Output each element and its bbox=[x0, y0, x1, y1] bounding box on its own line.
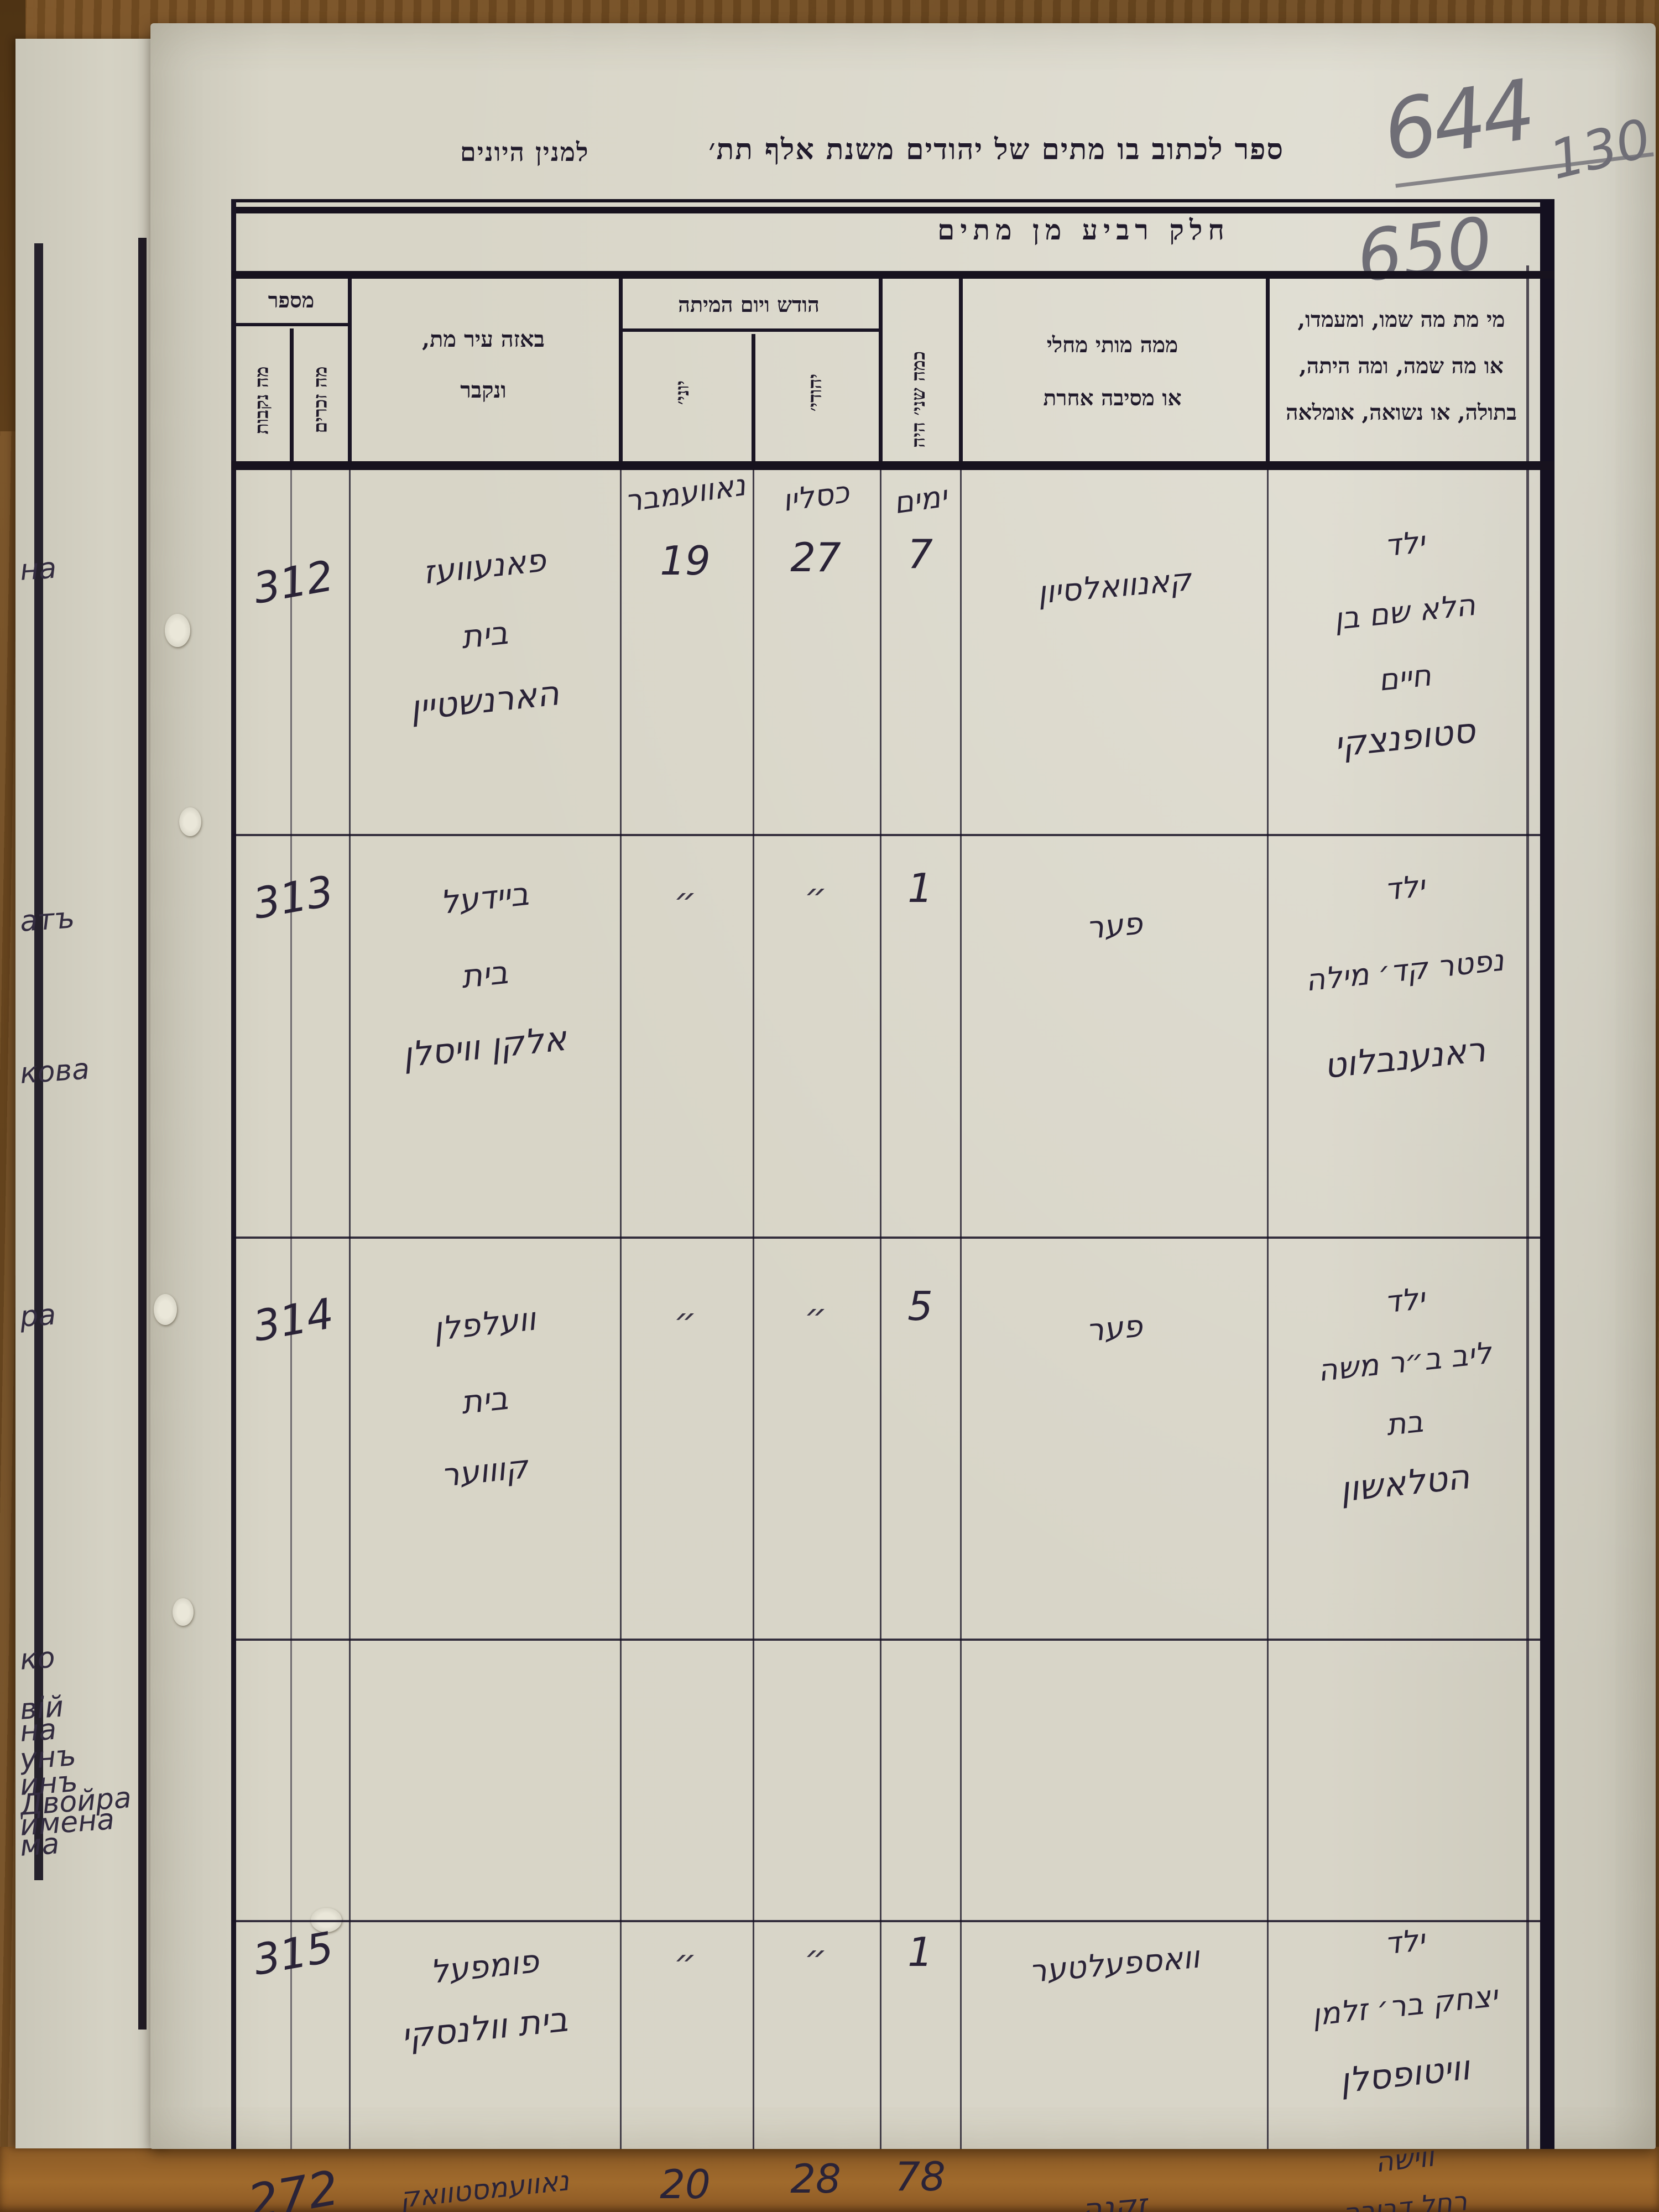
jewish-date: 28 bbox=[754, 2156, 877, 2202]
margin-handwriting-fragment: ма bbox=[19, 1822, 132, 1863]
name-line: הטלאשון bbox=[1271, 1449, 1538, 1517]
section-title: חלק רביע מן מתים bbox=[937, 213, 1230, 246]
column-rule bbox=[290, 328, 294, 461]
subheader-jewish-month: כסליו bbox=[753, 471, 879, 522]
place-cell: פאנעוועז בית הארנשטיין bbox=[352, 547, 617, 721]
name-line: ליב ב״ר משה bbox=[1271, 1331, 1538, 1393]
register-page: ספר לכתוב בו מתים של יהודים משנת אלף תת׳… bbox=[150, 23, 1656, 2149]
paper-hole bbox=[165, 614, 190, 647]
death-register-table: חלק רביע מן מתים 650 מי מת מה שמו, ומעמד… bbox=[234, 199, 1551, 2149]
deceased-name-cell: ווישה רחל דבורה בת מענץ לוק אשת ר׳ דוד מ… bbox=[1272, 2143, 1537, 2212]
paper-hole bbox=[173, 1598, 194, 1626]
table-rule bbox=[231, 461, 1554, 470]
age-value: 1 bbox=[881, 865, 959, 911]
place-line: בית bbox=[351, 602, 618, 667]
header-line: באזה עיר מת, bbox=[422, 326, 545, 352]
column-rule bbox=[960, 470, 962, 2149]
column-header-cause: ממה מותי מחלי או מסיבה אחרת bbox=[964, 319, 1260, 425]
column-header-jewish-date-vertical: יהודי׳ bbox=[804, 357, 826, 429]
julian-date: 20 bbox=[622, 2161, 749, 2208]
place-cell: ביידעל בית אלקן וויסלן bbox=[352, 879, 617, 1067]
column-header-age-vertical: כמה שני׳ היה bbox=[907, 351, 930, 423]
photo-of-register-page: наатъковараковійнаунъинъДвойраименама ספ… bbox=[0, 0, 1659, 2212]
name-line: ילד bbox=[1271, 1269, 1538, 1332]
column-header-julian-date-vertical: יוני׳ bbox=[671, 357, 693, 429]
row-rule bbox=[233, 1639, 1541, 1641]
cause-of-death: וואספעלטער bbox=[964, 1934, 1264, 1996]
subheader-julian-month: נאוועמבר bbox=[620, 467, 751, 519]
place-cell: נאוועמסטוואק בות מעש bbox=[352, 2173, 617, 2212]
name-line: וויטופסלן bbox=[1271, 2040, 1538, 2108]
date-group-rule bbox=[619, 328, 879, 332]
name-line: הלא שם בן bbox=[1271, 581, 1538, 643]
column-header-number: מספר bbox=[234, 288, 348, 313]
table-border bbox=[231, 207, 1554, 213]
margin-handwriting-fragment: ко bbox=[19, 1636, 132, 1677]
header-line: בתולה, או נשואה, אומלאה bbox=[1286, 400, 1517, 425]
cause-of-death: פער bbox=[964, 1298, 1264, 1360]
column-rule bbox=[752, 334, 755, 461]
deceased-name-cell: ילד נפטר קד׳ מילה ראנענבלוט bbox=[1272, 870, 1537, 1078]
julian-date: 19 bbox=[622, 538, 749, 584]
column-rule bbox=[1267, 470, 1269, 2149]
julian-date-ditto: ״ bbox=[622, 1301, 749, 1342]
entry-number: 315 bbox=[239, 1921, 348, 1987]
paper-hole bbox=[179, 807, 201, 836]
name-line: נפטר קד׳ מילה bbox=[1271, 939, 1538, 1001]
column-rule bbox=[879, 279, 883, 461]
place-line: בית bbox=[351, 942, 618, 1007]
header-line: או מסיבה אחרת bbox=[1044, 385, 1182, 411]
printed-header-left: למנין היונים bbox=[460, 137, 589, 167]
deceased-name-cell: ילד ליב ב״ר משה בת הטלאשון bbox=[1272, 1283, 1537, 1503]
place-line: בית bbox=[351, 1368, 618, 1433]
paper-hole bbox=[154, 1294, 177, 1325]
table-border bbox=[231, 199, 1554, 202]
name-line: ילד bbox=[1271, 857, 1538, 919]
column-header-deceased: מי מת מה שמו, ומעמדו, או מה שמה, ומה הית… bbox=[1271, 296, 1531, 436]
jewish-date-ditto: ״ bbox=[754, 1938, 877, 1979]
place-line: בית וולנסקי bbox=[350, 1994, 618, 2062]
jewish-date: 27 bbox=[754, 534, 877, 581]
place-cell: וועלפלן בית קוווער bbox=[352, 1305, 617, 1490]
cause-of-death: קאנוואלסיון bbox=[964, 556, 1264, 618]
name-line: בת bbox=[1271, 1392, 1538, 1454]
margin-handwriting-fragment: на bbox=[19, 546, 132, 587]
column-rule bbox=[349, 470, 351, 2149]
name-line: ילד bbox=[1271, 513, 1538, 575]
header-line: מי מת מה שמו, ומעמדו, bbox=[1298, 307, 1505, 332]
row-rule bbox=[233, 1920, 1541, 1922]
place-line: הארנשטיין bbox=[350, 666, 618, 734]
header-line: או מה שמה, ומה היתה, bbox=[1299, 353, 1504, 379]
age-value: 7 bbox=[881, 531, 959, 577]
pencil-folio-number-2: 130 bbox=[1543, 107, 1657, 191]
pencil-folio-number: 644 bbox=[1377, 62, 1538, 180]
column-header-place: באזה עיר מת, ונקבר bbox=[351, 314, 616, 416]
place-line: אלקן וויסלן bbox=[350, 1013, 618, 1081]
name-line: חיים bbox=[1271, 646, 1538, 709]
column-header-females-vertical: מה נקבות bbox=[251, 367, 273, 419]
column-rule bbox=[1266, 279, 1270, 461]
column-rule bbox=[959, 279, 963, 461]
place-line: ביידעל bbox=[351, 865, 618, 931]
table-rule bbox=[231, 271, 1554, 279]
pencil-page-number: 650 bbox=[1353, 202, 1496, 299]
age-value: 1 bbox=[881, 1929, 959, 1975]
name-line: ראנענבלוט bbox=[1271, 1024, 1538, 1092]
table-border bbox=[1540, 199, 1554, 2149]
header-line: ממה מותי מחלי bbox=[1047, 332, 1178, 358]
margin-handwriting-fragment: атъ bbox=[19, 898, 132, 938]
margin-handwriting-fragment: ра bbox=[19, 1293, 132, 1334]
cause-of-death: פער bbox=[964, 895, 1264, 957]
name-line: ווישה bbox=[1271, 2130, 1537, 2189]
previous-page-edge: наатъковараковійнаунъинъДвойраименама bbox=[15, 39, 170, 2148]
number-group-rule bbox=[231, 323, 348, 326]
deceased-name-cell: ילד יצחק בר׳ זלמן וויטופסלן bbox=[1272, 1924, 1537, 2094]
subheader-age-unit: ימים bbox=[879, 477, 961, 523]
entry-number: 313 bbox=[239, 864, 348, 931]
place-line: וועלפלן bbox=[351, 1291, 618, 1357]
column-header-date-group: הודש ויום המיתה bbox=[622, 292, 876, 317]
jewish-date-ditto: ״ bbox=[754, 876, 877, 917]
jewish-date-ditto: ״ bbox=[754, 1296, 877, 1337]
deceased-name-cell: ילד הלא שם בן חיים סטופנצקי bbox=[1272, 526, 1537, 758]
age-value: 5 bbox=[881, 1283, 959, 1329]
previous-page-border-bar bbox=[138, 238, 147, 2030]
place-line: פומפעל bbox=[351, 1934, 618, 1999]
printed-header-title: ספר לכתוב בו מתים של יהודים משנת אלף תת׳ bbox=[709, 133, 1284, 166]
place-cell: פומפעל בית וולנסקי bbox=[352, 1948, 617, 2048]
julian-date-ditto: ״ bbox=[622, 1942, 749, 1983]
julian-date-ditto: ״ bbox=[622, 880, 749, 921]
place-line: קוווער bbox=[351, 1438, 618, 1504]
name-line: יצחק בר׳ זלמן bbox=[1271, 1974, 1538, 2037]
header-line: ונקבר bbox=[460, 377, 507, 403]
name-line: סטופנצקי bbox=[1271, 703, 1538, 771]
entry-number: 312 bbox=[239, 549, 348, 615]
entry-number: 314 bbox=[239, 1287, 348, 1353]
place-line: פאנעוועז bbox=[351, 534, 618, 599]
margin-handwriting-fragment: кова bbox=[19, 1050, 132, 1091]
age-value: 78 bbox=[881, 2153, 959, 2200]
table-border bbox=[231, 199, 236, 2149]
row-rule bbox=[233, 1237, 1541, 1239]
row-rule bbox=[233, 834, 1541, 836]
column-header-males-vertical: מה זכרים bbox=[310, 367, 332, 419]
